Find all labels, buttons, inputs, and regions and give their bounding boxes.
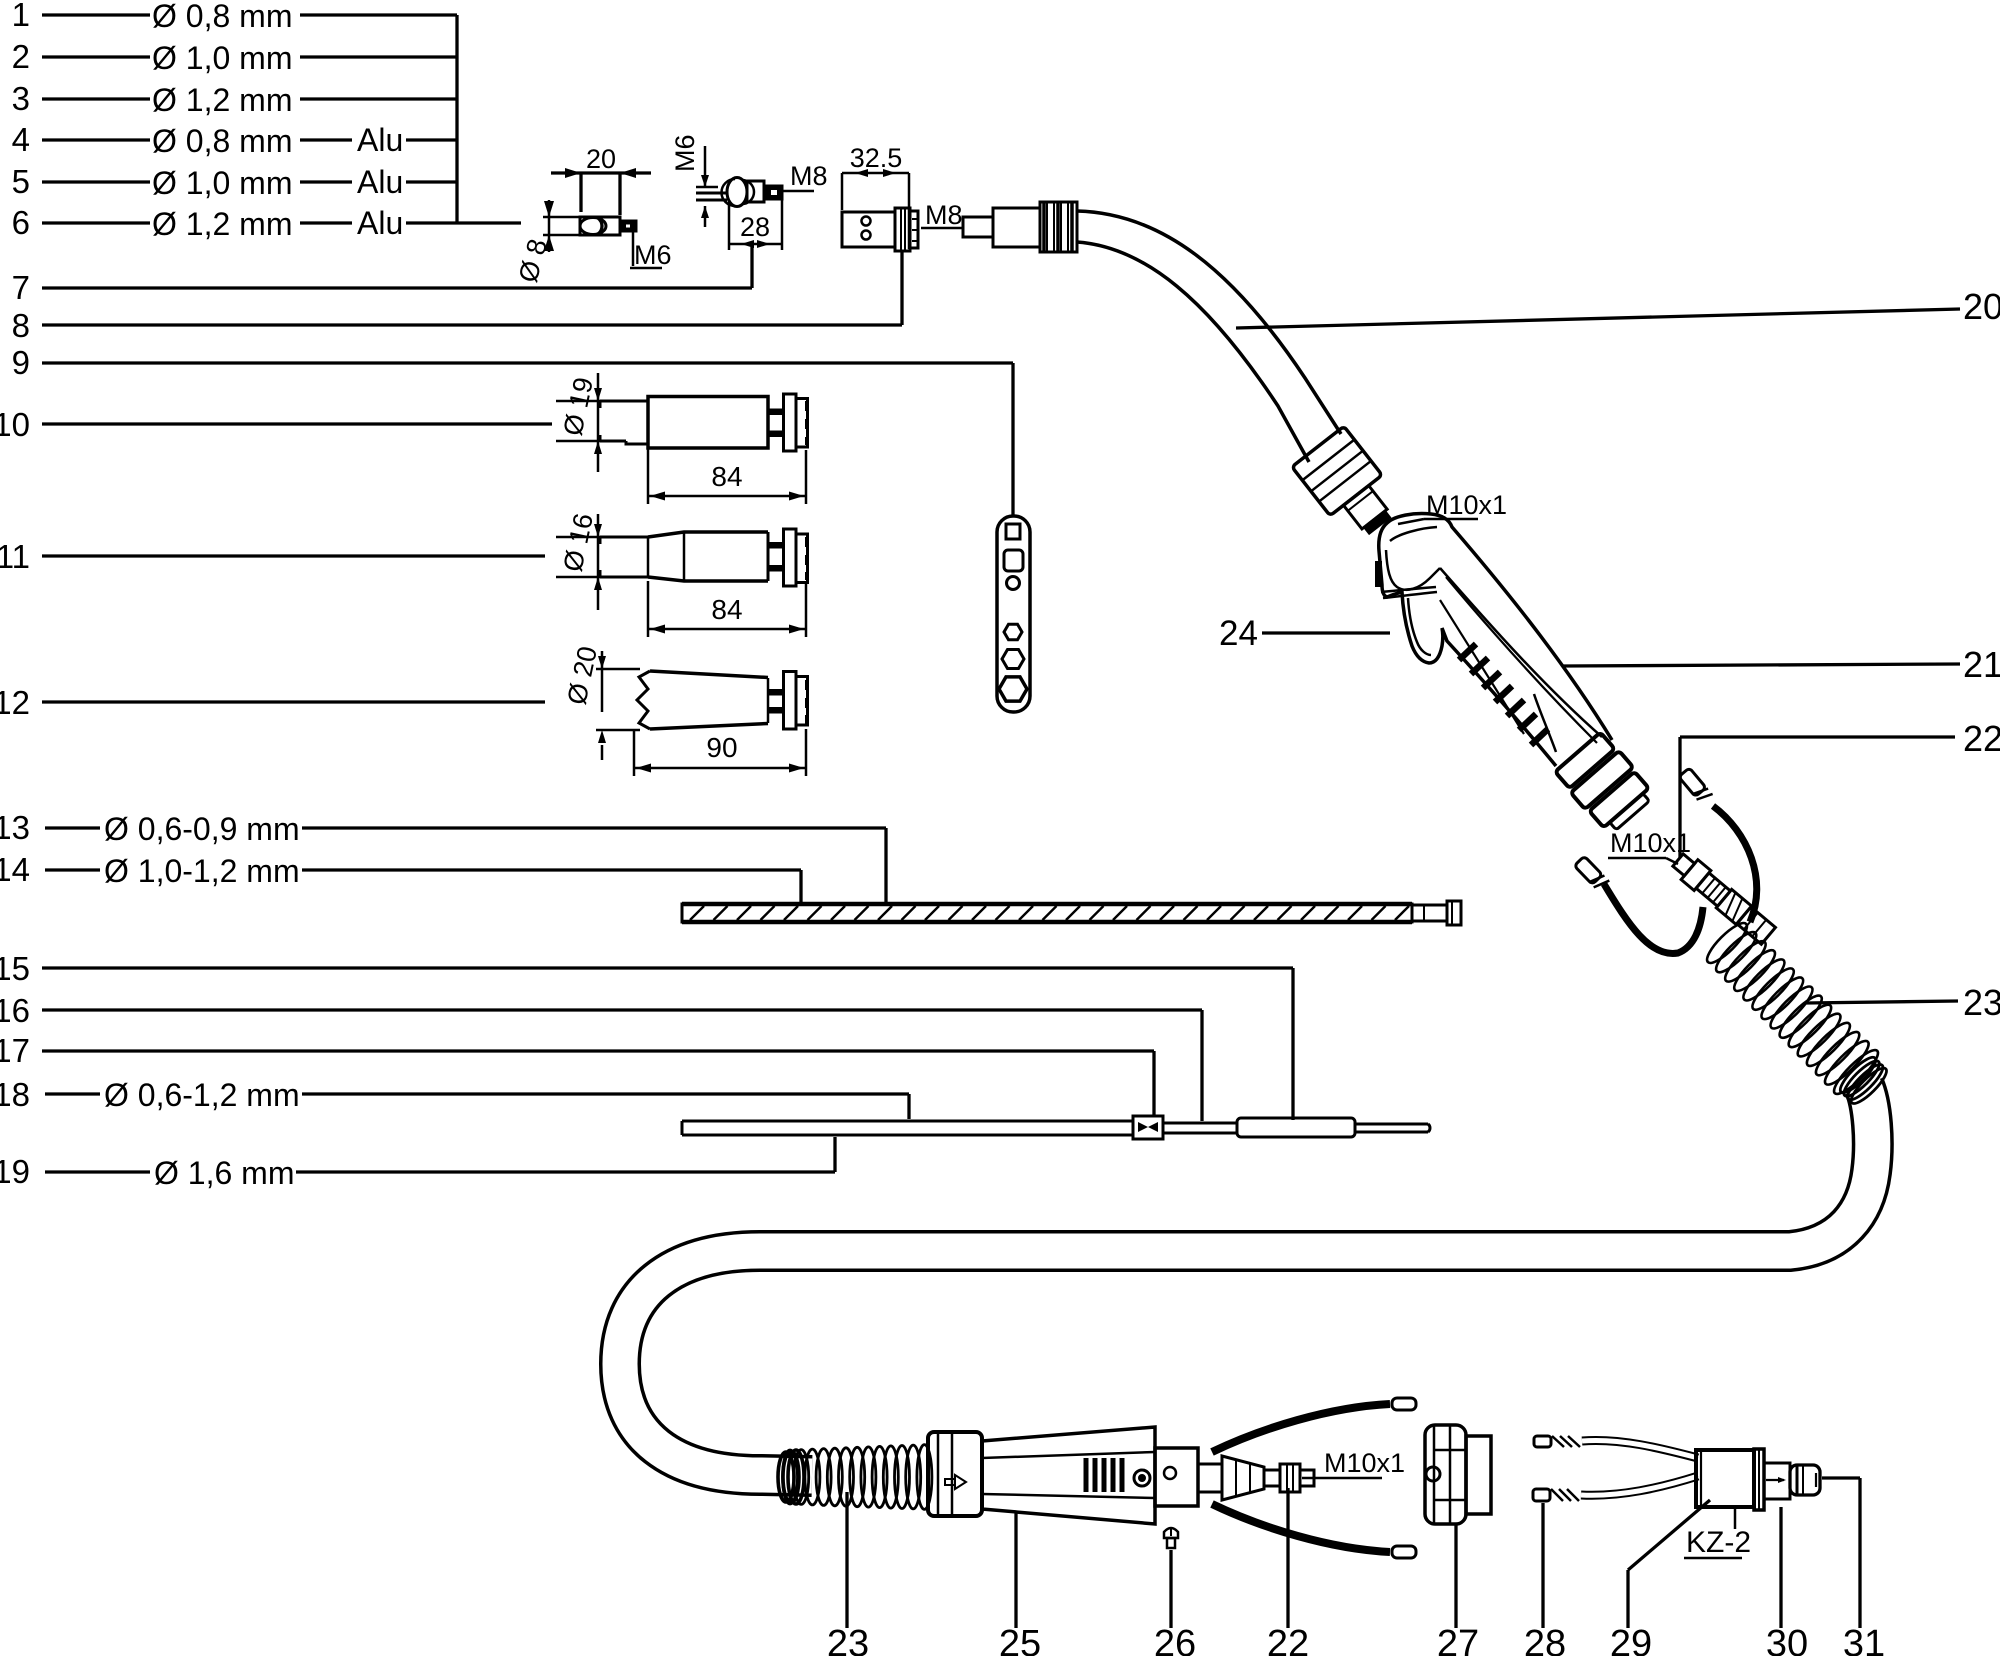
svg-text:11: 11	[0, 538, 30, 575]
svg-text:30: 30	[1766, 1623, 1808, 1656]
svg-text:29: 29	[1610, 1623, 1652, 1656]
svg-text:32.5: 32.5	[850, 143, 903, 173]
svg-text:1: 1	[12, 0, 30, 33]
svg-text:18: 18	[0, 1076, 30, 1113]
svg-text:6: 6	[12, 204, 30, 241]
svg-text:12: 12	[0, 684, 30, 721]
svg-text:M10x1: M10x1	[1610, 828, 1691, 858]
svg-text:28: 28	[1524, 1623, 1566, 1656]
svg-text:KZ-2: KZ-2	[1686, 1526, 1751, 1559]
svg-text:7: 7	[12, 269, 30, 306]
svg-text:15: 15	[0, 950, 30, 987]
svg-text:10: 10	[0, 406, 30, 443]
svg-text:13: 13	[0, 809, 30, 846]
svg-text:Alu: Alu	[357, 164, 403, 200]
svg-text:Ø 1,0 mm: Ø 1,0 mm	[152, 40, 292, 76]
svg-text:Ø 0,6-0,9 mm: Ø 0,6-0,9 mm	[104, 811, 300, 847]
svg-text:M6: M6	[670, 134, 700, 172]
svg-text:Ø 1,6 mm: Ø 1,6 mm	[154, 1155, 294, 1191]
svg-text:26: 26	[1154, 1623, 1196, 1656]
svg-text:24: 24	[1219, 614, 1258, 653]
svg-text:23: 23	[1963, 982, 2000, 1023]
svg-text:3: 3	[12, 80, 30, 117]
svg-text:2: 2	[12, 38, 30, 75]
svg-text:31: 31	[1843, 1623, 1885, 1656]
svg-text:Ø 0,8 mm: Ø 0,8 mm	[152, 0, 292, 34]
svg-text:8: 8	[12, 307, 30, 344]
svg-text:Ø 0,8 mm: Ø 0,8 mm	[152, 123, 292, 159]
svg-text:Alu: Alu	[357, 122, 403, 158]
svg-text:14: 14	[0, 851, 30, 888]
svg-text:23: 23	[827, 1623, 869, 1656]
svg-text:5: 5	[12, 163, 30, 200]
svg-text:21: 21	[1963, 644, 2000, 685]
svg-text:19: 19	[0, 1153, 30, 1190]
svg-text:Alu: Alu	[357, 205, 403, 241]
svg-text:Ø 0,6-1,2 mm: Ø 0,6-1,2 mm	[104, 1077, 300, 1113]
svg-text:M8: M8	[790, 161, 828, 191]
svg-text:84: 84	[711, 461, 742, 492]
svg-text:9: 9	[12, 344, 30, 381]
svg-text:84: 84	[711, 594, 742, 625]
svg-text:Ø 1,0-1,2 mm: Ø 1,0-1,2 mm	[104, 853, 300, 889]
svg-text:25: 25	[999, 1623, 1041, 1656]
svg-text:20: 20	[1963, 286, 2000, 327]
svg-text:22: 22	[1267, 1623, 1309, 1656]
svg-text:4: 4	[12, 121, 30, 158]
svg-text:Ø 1,2 mm: Ø 1,2 mm	[152, 206, 292, 242]
svg-text:27: 27	[1437, 1623, 1479, 1656]
svg-text:Ø 1,0 mm: Ø 1,0 mm	[152, 165, 292, 201]
svg-text:17: 17	[0, 1032, 30, 1069]
svg-text:M6: M6	[634, 240, 672, 270]
svg-text:20: 20	[586, 144, 616, 174]
svg-text:Ø 1,2 mm: Ø 1,2 mm	[152, 82, 292, 118]
svg-text:22: 22	[1963, 718, 2000, 759]
svg-text:M8: M8	[925, 200, 963, 230]
svg-text:M10x1: M10x1	[1324, 1448, 1405, 1478]
svg-text:90: 90	[706, 732, 737, 763]
svg-text:28: 28	[740, 212, 770, 242]
svg-text:16: 16	[0, 992, 30, 1029]
